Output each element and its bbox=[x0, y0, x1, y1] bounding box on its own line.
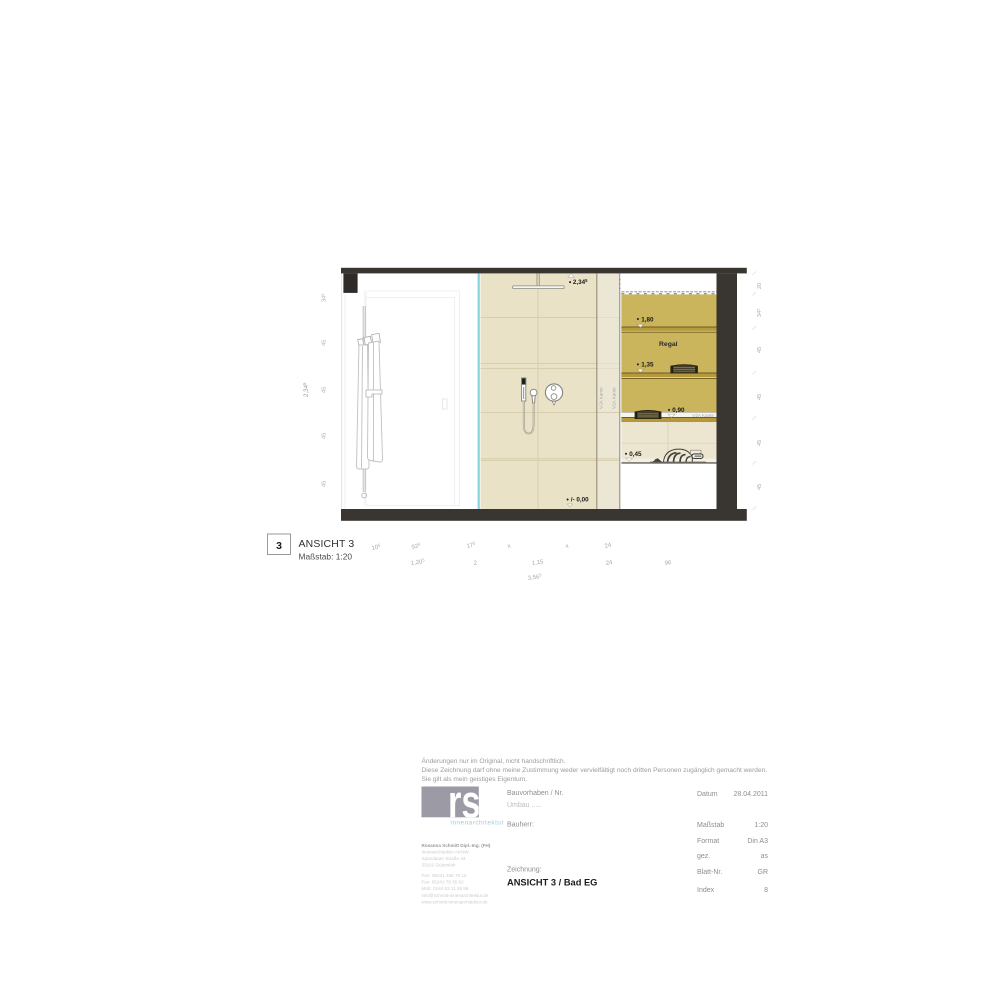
svg-text:Spandauer Straße 43: Spandauer Straße 43 bbox=[422, 856, 466, 861]
svg-text:45: 45 bbox=[322, 340, 328, 346]
svg-text:Zeichnung:: Zeichnung: bbox=[507, 867, 542, 874]
svg-text:Index: Index bbox=[697, 887, 715, 894]
svg-text:Umbau .....: Umbau ..... bbox=[507, 802, 541, 809]
svg-text:45: 45 bbox=[322, 387, 328, 393]
svg-text:0,45: 0,45 bbox=[629, 451, 642, 458]
svg-text:1,35: 1,35 bbox=[641, 362, 654, 369]
svg-text:Rosanna Schmitt Dipl.-Ing. (FH: Rosanna Schmitt Dipl.-Ing. (FH) bbox=[422, 843, 491, 848]
svg-text:28.04.2011: 28.04.2011 bbox=[733, 791, 768, 798]
svg-text:as: as bbox=[761, 853, 769, 860]
svg-text:innenarchitektur: innenarchitektur bbox=[451, 820, 505, 827]
svg-text:Datum: Datum bbox=[697, 791, 718, 798]
svg-text:Änderungen nur im Original, ni: Änderungen nur im Original, nicht handsc… bbox=[422, 757, 566, 765]
svg-text:www.schmitt-innenarchitektur.d: www.schmitt-innenarchitektur.de bbox=[422, 900, 488, 905]
svg-text:Bauvorhaben / Nr.: Bauvorhaben / Nr. bbox=[507, 790, 563, 797]
svg-text:45: 45 bbox=[757, 440, 763, 446]
svg-text:info@schmitt-innenarchitektur.: info@schmitt-innenarchitektur.de bbox=[422, 893, 489, 898]
svg-text:V2A Kante: V2A Kante bbox=[599, 387, 604, 409]
svg-text:1:20: 1:20 bbox=[754, 822, 768, 829]
svg-text:Maßstab: Maßstab bbox=[697, 822, 724, 829]
svg-text:0,90: 0,90 bbox=[672, 407, 685, 414]
svg-text:Fax: 05241 76 35 62: Fax: 05241 76 35 62 bbox=[422, 880, 465, 885]
svg-text:Maßstab: 1:20: Maßstab: 1:20 bbox=[299, 552, 353, 562]
svg-text:Blatt-Nr.: Blatt-Nr. bbox=[697, 869, 722, 876]
svg-text:Innenarchitektin AKNW: Innenarchitektin AKNW bbox=[422, 850, 470, 855]
svg-text:45: 45 bbox=[322, 433, 328, 439]
svg-text:45: 45 bbox=[757, 394, 763, 400]
svg-text:Regal: Regal bbox=[659, 341, 678, 348]
svg-text:45: 45 bbox=[757, 484, 763, 490]
svg-text:Sie gilt als mein geistiges Ei: Sie gilt als mein geistiges Eigentum. bbox=[422, 776, 528, 783]
svg-text:3: 3 bbox=[276, 540, 282, 552]
svg-text:ANSICHT 3: ANSICHT 3 bbox=[299, 539, 355, 550]
svg-text:Fon: 05241 336 70 12: Fon: 05241 336 70 12 bbox=[422, 873, 467, 878]
svg-text:45: 45 bbox=[322, 481, 328, 487]
svg-text:45: 45 bbox=[757, 347, 763, 353]
svg-text:Mob: 0163 63 11 26 98: Mob: 0163 63 11 26 98 bbox=[422, 886, 469, 891]
svg-text:Din A3: Din A3 bbox=[747, 838, 768, 845]
svg-text:1,80: 1,80 bbox=[641, 316, 654, 323]
svg-text:Diese Zeichnung darf ohne mein: Diese Zeichnung darf ohne meine Zustimmu… bbox=[422, 767, 768, 774]
svg-text:gez.: gez. bbox=[697, 853, 710, 860]
svg-text:Bauherr:: Bauherr: bbox=[507, 822, 534, 829]
svg-text:/- 0,00: /- 0,00 bbox=[571, 497, 589, 504]
svg-text:20: 20 bbox=[757, 283, 763, 289]
svg-text:GR: GR bbox=[758, 869, 769, 876]
svg-text:V2A Kante: V2A Kante bbox=[612, 387, 617, 409]
svg-text:33102 Gütersloh: 33102 Gütersloh bbox=[422, 863, 456, 868]
svg-text:Format: Format bbox=[697, 838, 719, 845]
svg-text:8: 8 bbox=[764, 887, 768, 894]
svg-text:ANSICHT 3 / Bad EG: ANSICHT 3 / Bad EG bbox=[507, 878, 597, 888]
